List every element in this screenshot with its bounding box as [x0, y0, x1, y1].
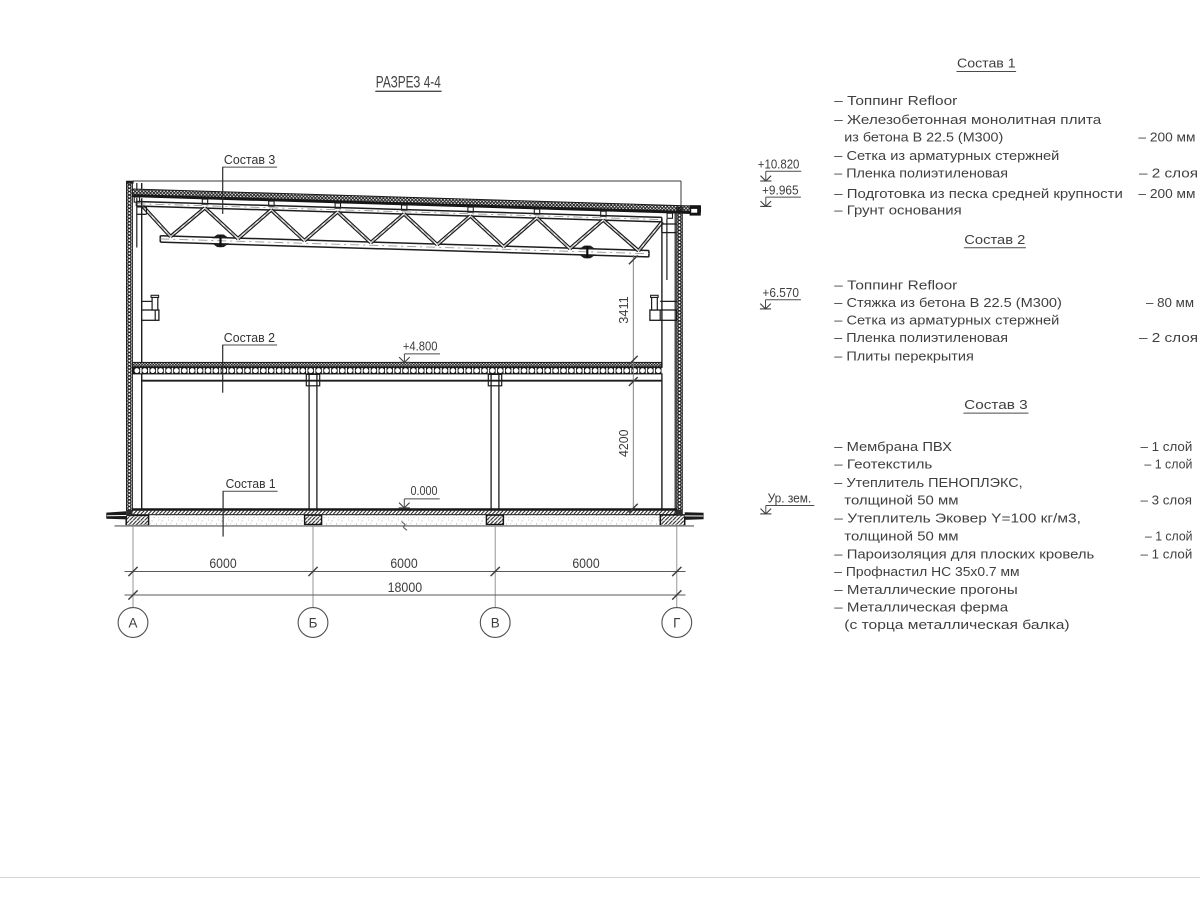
svg-text:– Пленка полиэтиленовая: – Пленка полиэтиленовая — [834, 165, 1008, 180]
svg-text:В: В — [491, 615, 500, 630]
svg-text:– 200 мм: – 200 мм — [1138, 130, 1195, 145]
svg-text:+9.965: +9.965 — [762, 183, 799, 197]
svg-text:– 1 слой: – 1 слой — [1144, 457, 1192, 472]
svg-text:+4.800: +4.800 — [403, 340, 438, 354]
svg-text:Состав 2: Состав 2 — [224, 331, 275, 345]
svg-text:Состав 1: Состав 1 — [226, 477, 276, 491]
svg-text:толщиной 50 мм: толщиной 50 мм — [844, 528, 958, 543]
svg-text:18000: 18000 — [388, 580, 423, 595]
svg-text:– Металлические прогоны: – Металлические прогоны — [834, 582, 1017, 597]
svg-text:– Стяжка из бетона В 22.5 (М30: – Стяжка из бетона В 22.5 (М300) — [834, 295, 1062, 310]
svg-text:– 80 мм: – 80 мм — [1146, 295, 1194, 310]
svg-text:(с торца металлическая балка): (с торца металлическая балка) — [844, 617, 1069, 632]
svg-text:– Топпинг Refloor: – Топпинг Refloor — [834, 277, 958, 292]
svg-text:– Утеплитель ПЕНОПЛЭКС,: – Утеплитель ПЕНОПЛЭКС, — [834, 475, 1022, 490]
svg-text:4200: 4200 — [616, 430, 631, 458]
svg-text:– 2 слоя: – 2 слоя — [1139, 330, 1198, 345]
svg-text:– 1 слой: – 1 слой — [1141, 546, 1193, 561]
svg-text:– 200 мм: – 200 мм — [1138, 186, 1195, 201]
svg-text:из бетона В 22.5 (М300): из бетона В 22.5 (М300) — [844, 130, 1003, 145]
svg-text:– Пленка полиэтиленовая: – Пленка полиэтиленовая — [834, 330, 1008, 345]
svg-text:– 1 слой: – 1 слой — [1145, 528, 1193, 543]
svg-text:– Пароизоляция для плоских кро: – Пароизоляция для плоских кровель — [834, 546, 1094, 561]
svg-text:+10.820: +10.820 — [758, 158, 800, 172]
svg-text:– Мембрана ПВХ: – Мембрана ПВХ — [834, 439, 952, 454]
svg-text:Г: Г — [673, 615, 680, 630]
svg-text:– Грунт основания: – Грунт основания — [834, 203, 961, 218]
svg-text:РАЗРЕЗ 4-4: РАЗРЕЗ 4-4 — [376, 74, 441, 92]
svg-text:– Сетка из арматурных стержней: – Сетка из арматурных стержней — [834, 313, 1059, 328]
svg-text:Б: Б — [309, 615, 318, 630]
svg-text:0.000: 0.000 — [411, 484, 438, 498]
svg-text:– Железобетонная монолитная п: – Железобетонная монолитная плита — [834, 112, 1102, 127]
svg-text:А: А — [129, 615, 138, 630]
svg-text:– Плиты перекрытия: – Плиты перекрытия — [834, 348, 974, 363]
svg-text:– Утеплитель Эковер Y=100 кг/м: – Утеплитель Эковер Y=100 кг/м3, — [834, 511, 1081, 526]
svg-text:Состав 3: Состав 3 — [224, 153, 275, 167]
svg-text:толщиной 50 мм: толщиной 50 мм — [844, 493, 958, 508]
svg-text:– 2 слоя: – 2 слоя — [1139, 165, 1198, 180]
svg-text:– 3 слоя: – 3 слоя — [1141, 493, 1193, 508]
svg-text:Ур. зем.: Ур. зем. — [768, 492, 812, 506]
svg-text:– Подготовка из песка средней: – Подготовка из песка средней крупности — [834, 186, 1123, 201]
svg-text:Состав 3: Состав 3 — [964, 397, 1028, 412]
svg-text:Состав 2: Состав 2 — [964, 232, 1025, 247]
svg-text:3411: 3411 — [616, 296, 631, 324]
svg-text:– Металлическая ферма: – Металлическая ферма — [834, 600, 1009, 615]
svg-text:6000: 6000 — [572, 556, 600, 571]
svg-text:Состав 1: Состав 1 — [957, 56, 1016, 71]
svg-text:– 1 слой: – 1 слой — [1141, 439, 1193, 454]
svg-text:6000: 6000 — [390, 556, 418, 571]
svg-text:6000: 6000 — [209, 556, 237, 571]
svg-text:– Топпинг Refloor: – Топпинг Refloor — [834, 93, 958, 108]
svg-text:– Сетка из арматурных стержней: – Сетка из арматурных стержней — [834, 148, 1059, 163]
svg-text:– Геотекстиль: – Геотекстиль — [834, 457, 932, 472]
svg-text:+6.570: +6.570 — [762, 286, 799, 300]
svg-text:– Профнастил НС 35х0.7 мм: – Профнастил НС 35х0.7 мм — [834, 564, 1019, 579]
